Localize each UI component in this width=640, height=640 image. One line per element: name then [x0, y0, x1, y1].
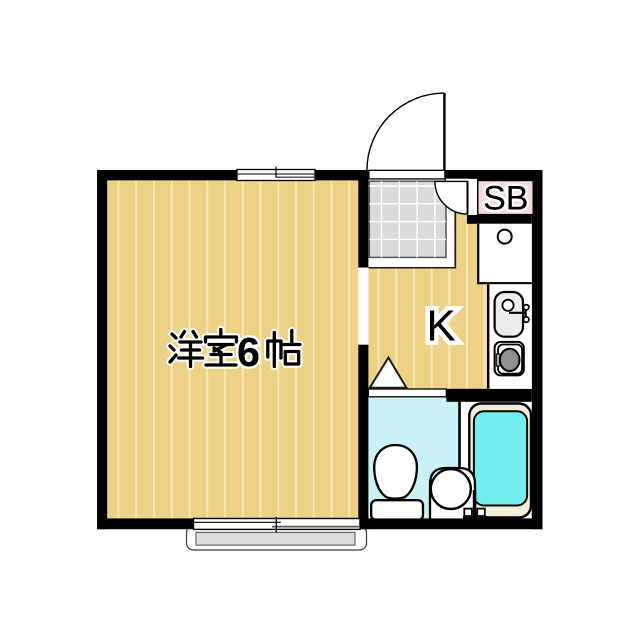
svg-text:K: K — [426, 302, 455, 351]
svg-text:SB: SB — [483, 180, 528, 218]
svg-text:6: 6 — [237, 329, 260, 375]
